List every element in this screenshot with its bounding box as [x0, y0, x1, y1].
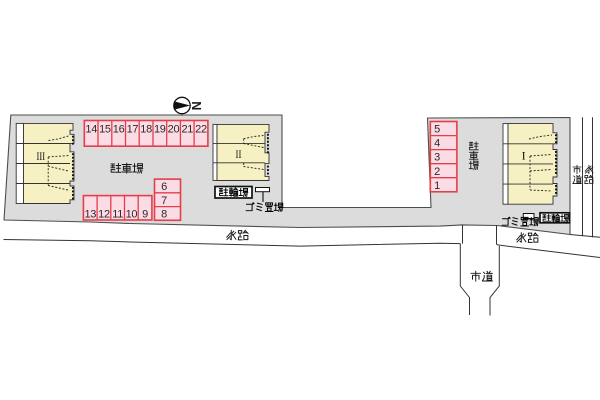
- svg-text:14: 14: [85, 124, 97, 136]
- svg-text:11: 11: [112, 208, 123, 220]
- svg-text:9: 9: [142, 208, 148, 220]
- svg-text:19: 19: [154, 124, 166, 136]
- svg-text:10: 10: [126, 208, 138, 220]
- svg-text:8: 8: [161, 209, 167, 221]
- svg-text:21: 21: [181, 124, 193, 136]
- svg-text:N: N: [189, 101, 203, 110]
- svg-text:16: 16: [113, 124, 125, 136]
- svg-text:13: 13: [84, 208, 96, 220]
- svg-text:1: 1: [434, 180, 440, 192]
- svg-text:15: 15: [99, 124, 111, 136]
- svg-text:I: I: [522, 149, 526, 163]
- svg-text:3: 3: [434, 152, 440, 164]
- svg-text:II: II: [236, 147, 242, 161]
- svg-text:22: 22: [195, 124, 207, 136]
- svg-text:5: 5: [434, 124, 440, 136]
- svg-text:20: 20: [168, 124, 180, 136]
- svg-text:4: 4: [434, 138, 440, 150]
- svg-text:17: 17: [127, 124, 139, 136]
- svg-text:7: 7: [161, 195, 167, 207]
- svg-text:2: 2: [434, 166, 440, 178]
- svg-text:6: 6: [161, 181, 167, 193]
- svg-text:18: 18: [140, 124, 152, 136]
- svg-text:III: III: [37, 149, 46, 163]
- svg-text:12: 12: [98, 208, 110, 220]
